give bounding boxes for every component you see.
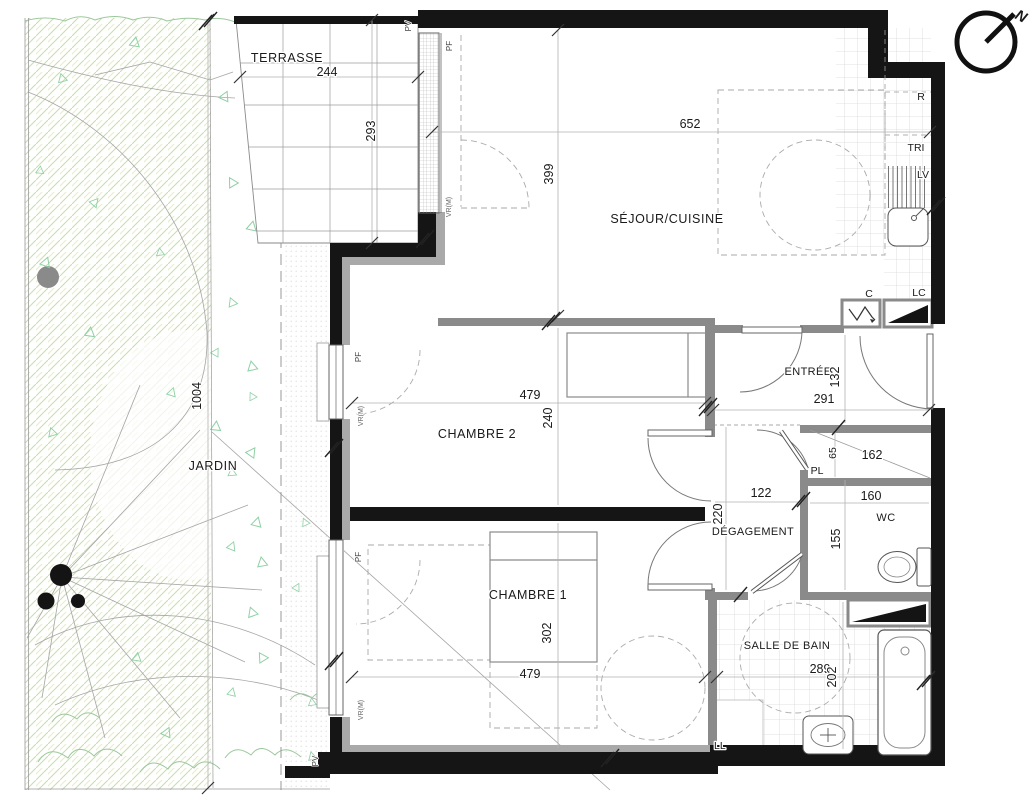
chambre1-door-leaf [648,584,712,590]
compass-icon: N [957,7,1031,71]
chambre2-height-dim: 240 [541,408,555,429]
vr-label-bay: VR(M) [446,197,453,217]
chambre2-label: CHAMBRE 2 [438,427,516,441]
closet-diag-dim: 162 [862,448,883,462]
pf-label-chambre1: PF [354,552,363,562]
kitchen-sink-icon [888,208,928,246]
pf-label-chambre2: PF [354,352,363,362]
washer-label: LL [714,740,726,752]
fridge-label: R [917,91,925,103]
vr-label-chambre2: VR(M) [358,406,365,426]
wc-width-dim: 160 [861,489,882,503]
bathtub-icon [878,630,931,755]
floor-plan: TERRASSE 244 293 JARDIN 1004 SÉJOUR/CUIS… [0,0,1031,800]
chambre2-window-sill [317,343,329,421]
wc-label: WC [876,512,895,524]
tree-black-2 [38,593,55,610]
vr-label-chambre1: VR(M) [358,700,365,720]
beds [490,333,710,662]
front-door-swing [860,336,933,409]
pv-label-top: PV [404,20,413,31]
compass-north-label: N [1012,7,1031,28]
closet-label: PL [811,465,824,477]
pv-label-bottom: PV [311,755,320,766]
degagement-height-dim: 220 [711,504,725,525]
entree-height-dim: 132 [828,367,842,388]
lc-unit-label: LC [912,287,926,299]
garden-clearing [90,330,290,580]
washbasin-icon [803,716,853,754]
terrasse-label: TERRASSE [251,51,323,65]
chambre1-width-dim: 479 [520,667,541,681]
floor-plan-canvas: TERRASSE 244 293 JARDIN 1004 SÉJOUR/CUIS… [0,0,1031,800]
dishwasher-label: LV [917,169,929,181]
degagement-label: DÉGAGEMENT [712,525,794,538]
chambre2-door-leaf [648,430,712,436]
tree-gray [37,266,59,288]
tree-black-1 [50,564,72,586]
chambre1-window-swing [356,560,420,624]
bay-window-swing [461,140,529,208]
tree-black-3 [71,594,85,608]
terrasse-width-dim: 244 [317,65,338,79]
chambre2-door-swing [648,438,711,501]
sejour-entree-door-leaf [742,327,802,333]
sejour-entree-door-swing [740,330,802,392]
chambre1-window-sill [317,556,329,708]
entree-width-dim: 291 [814,392,835,406]
chambre2-window-swing [356,350,420,414]
diagonal-door-leaves [752,431,807,592]
chambre1-door-swing [648,522,711,585]
terrasse-height-dim: 293 [364,121,378,142]
sejour-label: SÉJOUR/CUISINE [610,211,723,226]
sejour-height-dim: 399 [542,164,556,185]
sdb-height-dim: 202 [825,667,839,688]
jardin-label: JARDIN [189,459,238,473]
entree-label: ENTRÉE [784,365,831,378]
chambre1-label: CHAMBRE 1 [489,588,567,602]
tri-label: TRI [908,142,925,154]
jardin-dim: 1004 [190,382,204,410]
front-door-leaf [927,334,933,408]
c-unit-label: C [865,288,873,300]
chambre2-width-dim: 479 [520,388,541,402]
degagement-width-dim: 122 [751,486,772,500]
chambre1-height-dim: 302 [540,623,554,644]
toilet-icon [878,548,931,586]
bay-window [419,33,439,213]
pf-label-bay: PF [445,41,454,51]
sejour-width-dim: 652 [680,117,701,131]
closet-depth-dim: 65 [827,447,839,459]
sdb-label: SALLE DE BAIN [744,640,831,652]
wc-height-dim: 155 [829,529,843,550]
